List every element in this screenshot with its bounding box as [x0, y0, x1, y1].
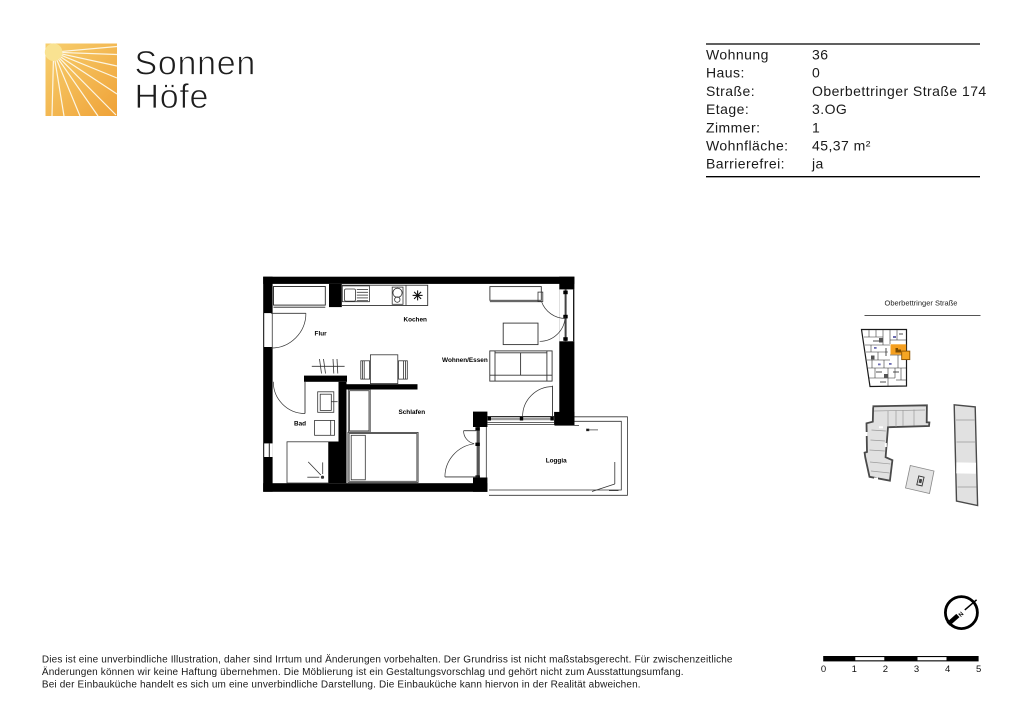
svg-text:Höfe: Höfe [135, 78, 210, 116]
svg-text:45,37 m²: 45,37 m² [812, 138, 871, 154]
svg-text:36: 36 [812, 47, 828, 63]
svg-text:Haus:: Haus: [706, 65, 745, 81]
svg-text:4: 4 [945, 664, 950, 675]
svg-text:0: 0 [812, 65, 820, 81]
svg-text:ja: ja [811, 156, 824, 172]
svg-text:5: 5 [976, 664, 981, 675]
svg-text:Wohnen/Essen: Wohnen/Essen [442, 357, 488, 364]
svg-text:Dies ist eine unverbindliche I: Dies ist eine unverbindliche Illustratio… [42, 654, 733, 666]
svg-text:Zimmer:: Zimmer: [706, 119, 760, 135]
svg-text:3: 3 [914, 664, 919, 675]
svg-text:Bei der Einbauküche handelt es: Bei der Einbauküche handelt es sich um e… [42, 679, 641, 690]
svg-text:Kochen: Kochen [403, 317, 427, 324]
svg-text:Oberbettringer Straße: Oberbettringer Straße [885, 299, 958, 308]
svg-text:Bad: Bad [294, 421, 306, 428]
svg-text:Änderungen können wir keine Ha: Änderungen können wir keine Haftung über… [42, 666, 684, 678]
svg-text:0: 0 [821, 664, 826, 675]
svg-text:Barrierefrei:: Barrierefrei: [706, 156, 785, 172]
svg-text:Wohnfläche:: Wohnfläche: [706, 138, 789, 154]
svg-text:N: N [958, 611, 965, 618]
svg-text:Loggia: Loggia [546, 457, 567, 464]
svg-text:Sonnen: Sonnen [135, 45, 256, 83]
svg-text:1: 1 [852, 664, 857, 675]
svg-text:Flur: Flur [315, 330, 328, 337]
svg-text:Etage:: Etage: [706, 101, 749, 117]
svg-text:1: 1 [812, 119, 820, 135]
svg-text:3.OG: 3.OG [812, 101, 847, 117]
svg-text:Schlafen: Schlafen [398, 409, 425, 416]
svg-text:2: 2 [883, 664, 888, 675]
svg-text:Wohnung: Wohnung [706, 47, 769, 63]
svg-text:Straße:: Straße: [706, 83, 755, 99]
svg-text:Oberbettringer Straße 174: Oberbettringer Straße 174 [812, 83, 987, 99]
